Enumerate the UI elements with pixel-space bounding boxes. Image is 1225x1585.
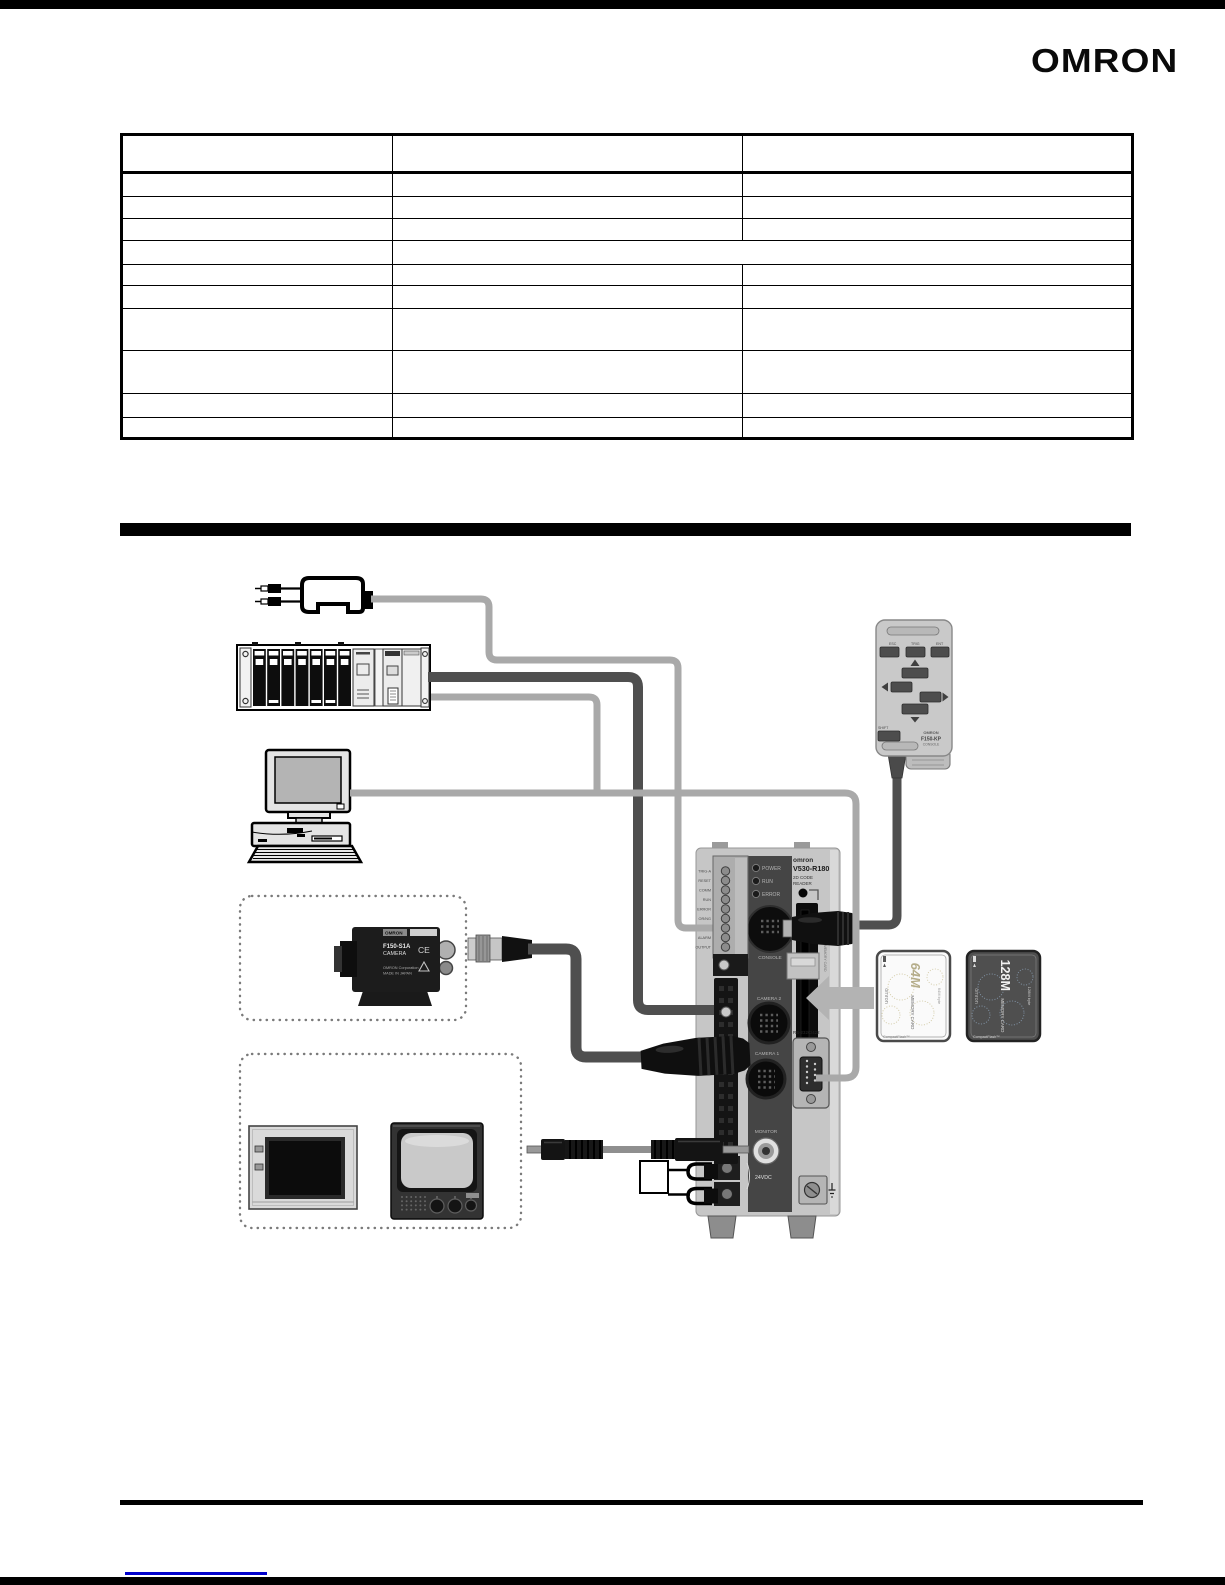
unit-type-label1: 2D CODE [793,875,813,880]
plc-cable-light [428,697,597,793]
camera-brand-label: OMRON [385,931,403,936]
adjustment-hole [799,889,808,898]
unit-type-label2: READER [793,881,813,886]
serial-port [793,1038,829,1108]
card-size-label: 128M [998,960,1012,991]
error-led-label: ERROR [762,892,780,898]
camera-lens-mount [340,941,357,977]
system-configuration-diagram: OMRON F150-S1A CAMERA CE OMRON Corporati… [0,0,1225,1585]
svg-text:RESET: RESET [698,879,711,883]
svg-text:OR/NG: OR/NG [699,917,711,921]
camera1-port [747,1060,785,1098]
monitor-port-label: MONITOR [755,1129,778,1135]
card-type-label: MEMORY CARD [910,995,915,1030]
camera-model-label: F150-S1A [383,944,411,950]
io-terminal-labels: TRIG-A RESET COMM RUN ERROR OR/NG GATE A… [695,870,711,950]
run-led [752,877,759,884]
card-brand-label: omron [883,988,889,1004]
card-capacity-label: 64M byte [937,988,942,1005]
plc-io-modules [253,649,351,706]
down-button [902,704,928,714]
up-button [902,668,928,678]
camera-f150-s1a: OMRON F150-S1A CAMERA CE OMRON Corporati… [334,927,455,1006]
camera-origin-label: MADE IN JAPAN [383,972,412,976]
terminal-block [713,856,748,976]
plc-rack [237,642,430,710]
left-button [891,682,912,692]
card-tech-label: CompactFlash™ [883,1035,910,1039]
monitor-knob [430,1199,444,1213]
right-button [920,692,941,702]
panel-button [255,1146,263,1152]
camera2-port [749,1003,789,1043]
memory-card-128m: 128M MEMORY CARD omron 128M byte Compact… [967,951,1040,1041]
ce-mark: CE [418,945,430,955]
card-brand-label: omron [973,988,979,1004]
camera-cable-connector [468,935,532,962]
esc-button [880,647,899,657]
error-led [752,890,759,897]
panel-button [255,1164,263,1170]
monitor-cable [527,1138,749,1161]
camera-maker-label: OMRON Corporation [383,966,418,970]
document-page: OMRON [0,0,1225,1585]
camera2-port-label: CAMERA 2 [757,996,782,1002]
desktop-computer [249,750,361,862]
ent-button-label: ENT [936,642,944,646]
card-capacity-label: 128M byte [1027,987,1032,1006]
console-port-label: CONSOLE [758,955,781,961]
monitor-knob [448,1199,462,1213]
svg-text:ERROR: ERROR [697,908,711,912]
card-tech-label: CompactFlash™ [973,1035,1000,1039]
power-label: 24VDC [755,1175,772,1181]
run-led-label: RUN [762,879,773,885]
unit-brand-label: omron [793,857,813,864]
svg-text:ALARM: ALARM [698,936,711,940]
card-size-label: 64M [908,963,923,989]
camera-plug [640,1035,751,1079]
svg-text:RUN: RUN [703,898,711,902]
console-brand-label: OMRON [923,730,938,735]
trig-button-label: TRIG [911,642,920,646]
ent-button [931,647,949,657]
camera-cable [528,949,648,1057]
power-led [752,864,759,871]
trig-button [906,647,925,657]
camera1-port-label: CAMERA 1 [755,1051,780,1057]
power-led-label: POWER [762,866,781,872]
console-caption-label: CONSOLE [923,743,940,747]
photoelectric-sensor [255,578,373,612]
svg-text:COMM: COMM [699,889,711,893]
unit-foot [708,1216,736,1238]
svg-text:TRIG-A: TRIG-A [698,870,711,874]
sensor-lead-connector [255,584,281,593]
touch-panel-display [249,1126,357,1209]
slot-label: MEMORY CARD [823,945,827,972]
console-f150-kp: ESC TRIG ENT SHIFT OMRON F150-KP CONSOLE [876,620,952,778]
shift-button [878,731,900,741]
memory-card-64m: 64M MEMORY CARD omron 64M byte CompactFl… [877,951,950,1041]
card-type-label: MEMORY CARD [1000,998,1005,1033]
camera-rear-connector [440,962,453,975]
shift-button-label: SHIFT [878,726,889,730]
card-eject-piece [787,953,819,979]
serial-port-label: RS-232C/422 [793,1030,820,1035]
monitor-knob [466,1200,477,1211]
unit-foot [788,1216,816,1238]
esc-button-label: ESC [889,642,897,646]
sensor-lead-connector [255,597,281,606]
camera-type-label: CAMERA [383,951,406,957]
video-monitor [391,1123,483,1219]
svg-text:OUTPUT: OUTPUT [695,946,711,950]
unit-model-label: V530-R180 [793,864,829,873]
